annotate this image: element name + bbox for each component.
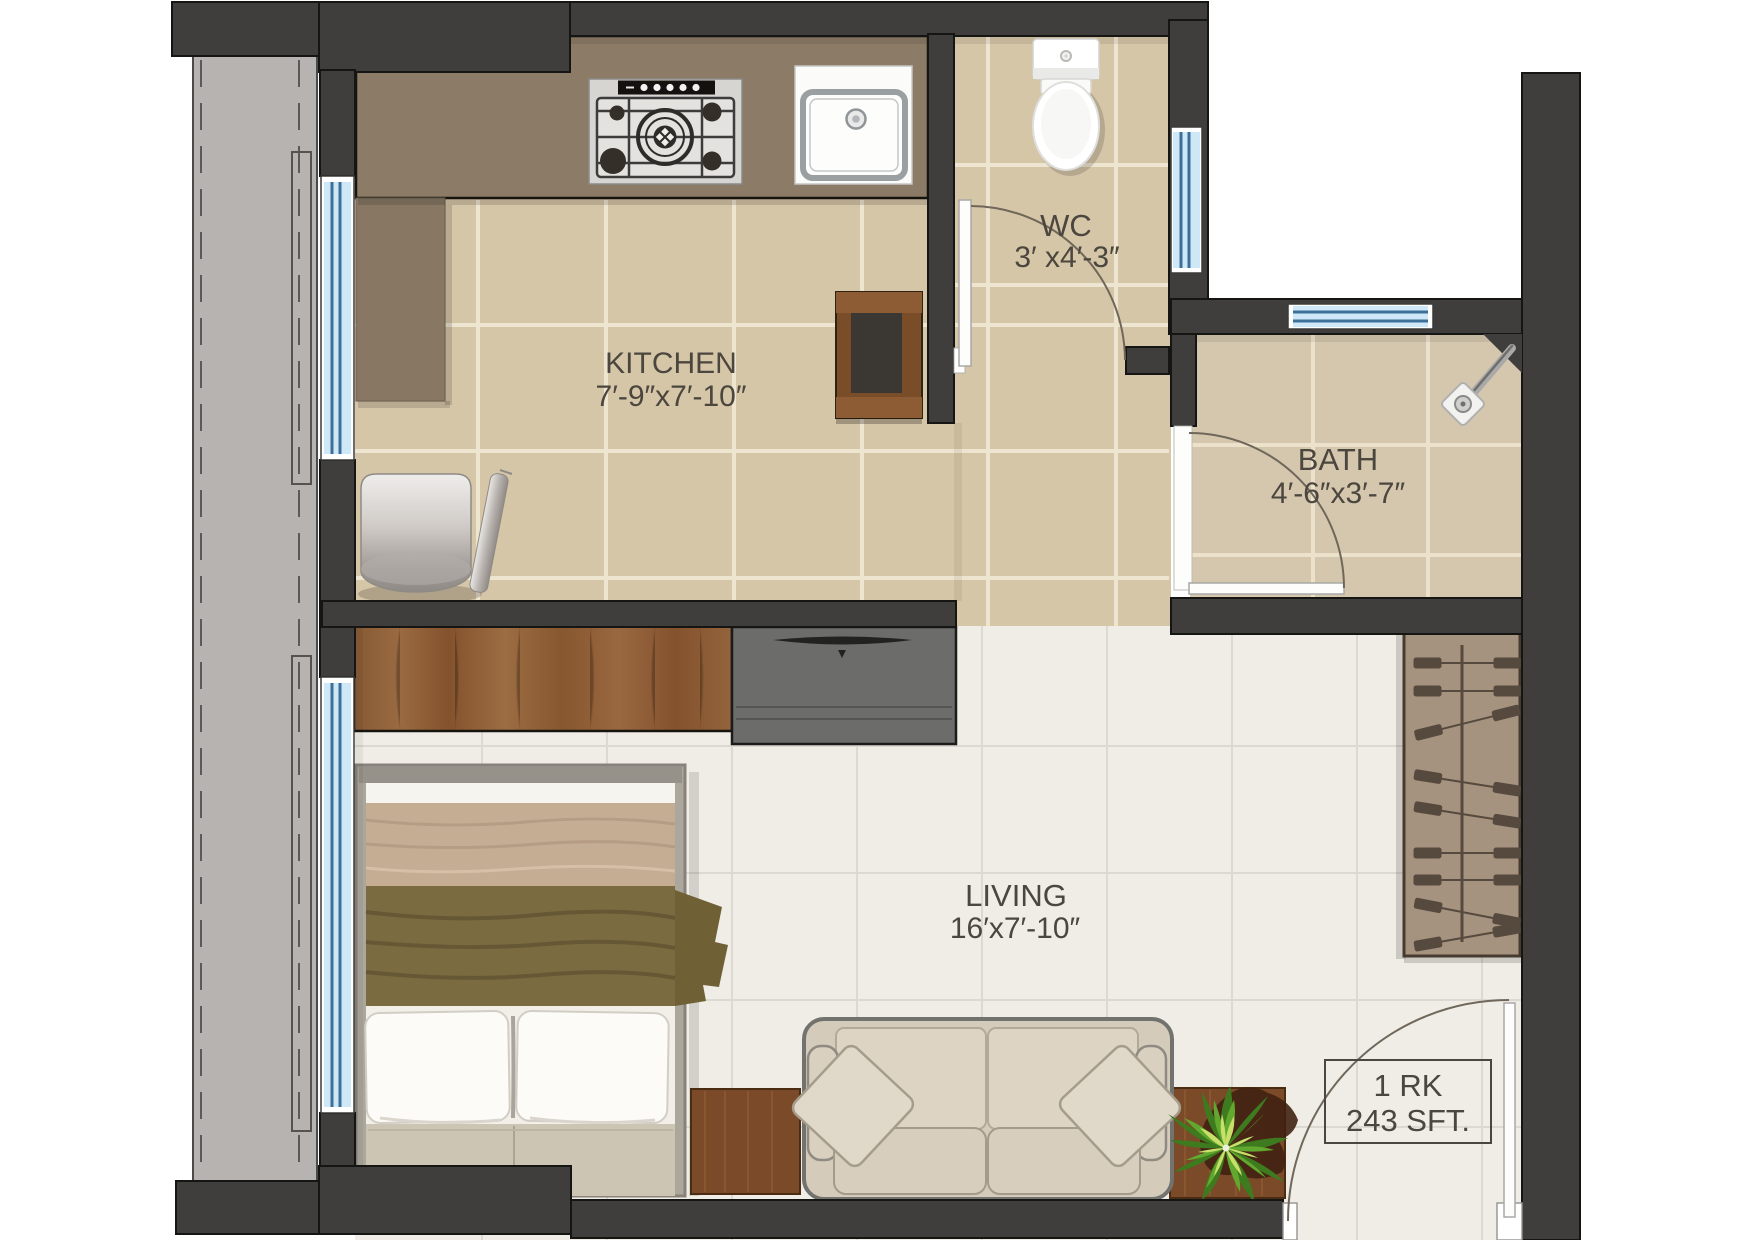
svg-text:4′-6″x3′-7″: 4′-6″x3′-7″	[1271, 477, 1406, 510]
svg-text:BATH: BATH	[1298, 442, 1378, 477]
svg-text:KITCHEN: KITCHEN	[605, 347, 737, 380]
svg-text:16′x7′-10″: 16′x7′-10″	[950, 912, 1081, 945]
svg-text:1 RK: 1 RK	[1374, 1068, 1443, 1103]
svg-text:WC: WC	[1040, 208, 1092, 243]
svg-text:LIVING: LIVING	[965, 878, 1067, 913]
svg-text:7′-9″x7′-10″: 7′-9″x7′-10″	[596, 380, 747, 413]
svg-text:3′ x4′-3″: 3′ x4′-3″	[1014, 241, 1120, 274]
svg-text:243 SFT.: 243 SFT.	[1346, 1103, 1470, 1138]
